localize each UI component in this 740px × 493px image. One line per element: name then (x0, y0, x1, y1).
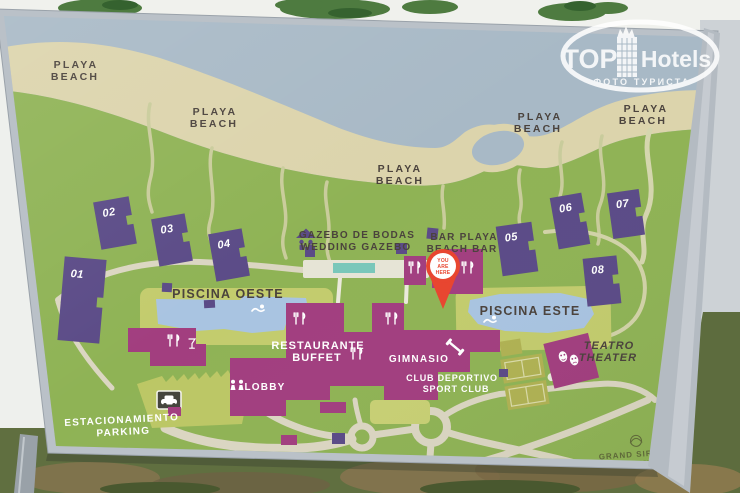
watermark-top-word: TOP (562, 44, 617, 74)
watermark-subtitle: ФОТО ТУРИСТА (593, 77, 690, 87)
watermark-hotels-word: Hotels (641, 46, 711, 72)
photo-resort-map-sign: 01 02 03 04 05 06 07 08 (0, 0, 740, 493)
